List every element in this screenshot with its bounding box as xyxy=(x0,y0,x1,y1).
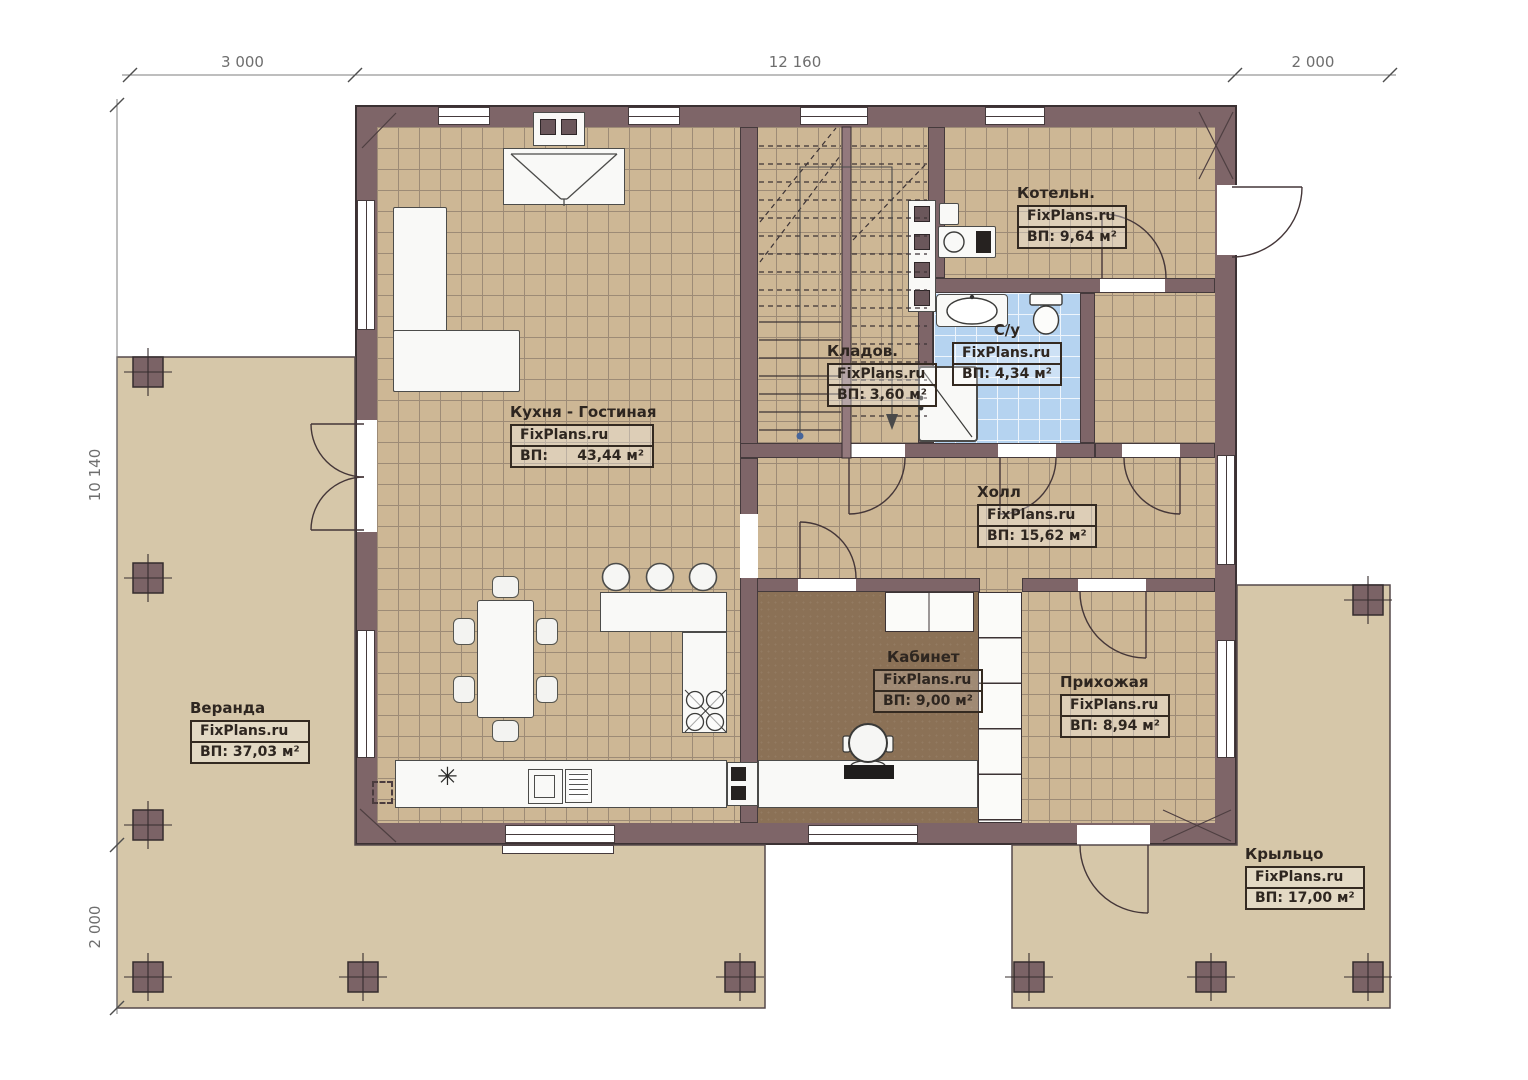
room-area: ВП: 9,00 м² xyxy=(875,692,981,711)
dining-chair-left-2 xyxy=(453,676,475,703)
dining-chair-right-2 xyxy=(536,676,558,703)
room-area: ВП: 15,62 м² xyxy=(979,527,1095,546)
room-info-box: FixPlans.ru ВП: 8,94 м² xyxy=(1060,694,1170,738)
watermark-text: FixPlans.ru xyxy=(875,671,981,692)
window-hall-right xyxy=(1217,455,1235,565)
dimension-top-right: 2 000 xyxy=(1235,53,1391,71)
watermark-text: FixPlans.ru xyxy=(192,722,308,743)
room-label-veranda: Веранда FixPlans.ru ВП: 37,03 м² xyxy=(190,699,310,764)
room-info-box: FixPlans.ru ВП: 4,34 м² xyxy=(952,342,1062,386)
interior-wall-bathroom-right xyxy=(1080,293,1095,443)
room-label-hall: Холл FixPlans.ru ВП: 15,62 м² xyxy=(977,483,1097,548)
room-label-entry: Прихожая FixPlans.ru ВП: 8,94 м² xyxy=(1060,673,1170,738)
bar-counter xyxy=(600,592,727,632)
vent-duct-3 xyxy=(914,262,930,278)
room-info-box: FixPlans.ru ВП: 3,60 м² xyxy=(827,363,937,407)
window-kitchen-left xyxy=(357,630,375,758)
window-sill-exterior xyxy=(502,845,614,854)
dish-drainer xyxy=(565,769,592,803)
office-cabinet xyxy=(885,592,974,632)
watermark-text: FixPlans.ru xyxy=(1247,868,1363,889)
room-area: ВП: 4,34 м² xyxy=(954,365,1060,384)
room-name: Крыльцо xyxy=(1245,845,1365,863)
wardrobe-column xyxy=(978,592,1022,823)
dimension-top-middle: 12 160 xyxy=(355,53,1235,71)
window-office-bottom xyxy=(808,825,918,843)
room-info-box: FixPlans.ru ВП: 15,62 м² xyxy=(977,504,1097,548)
room-label-porch: Крыльцо FixPlans.ru ВП: 17,00 м² xyxy=(1245,845,1365,910)
room-name: С/у xyxy=(952,321,1062,339)
room-area: ВП: 9,64 м² xyxy=(1019,228,1125,247)
room-info-box: FixPlans.ru ВП: 37,03 м² xyxy=(190,720,310,764)
boiler-exterior-door xyxy=(1232,187,1302,257)
room-area: ВП: 17,00 м² xyxy=(1247,889,1363,908)
dining-chair-left-1 xyxy=(453,618,475,645)
room-area: ВП: 8,94 м² xyxy=(1062,717,1168,736)
room-label-office: Кабинет FixPlans.ru ВП: 9,00 м² xyxy=(873,648,983,713)
room-name: Кладов. xyxy=(827,342,937,360)
room-info-box: FixPlans.ru ВП: 9,00 м² xyxy=(873,669,983,713)
room-name: Котельн. xyxy=(1017,184,1127,202)
chimney-flue-1 xyxy=(540,119,556,135)
room-area: ВП: 37,03 м² xyxy=(192,743,308,762)
door-opening-main-entrance xyxy=(1077,825,1150,845)
passage-kitchen-hall xyxy=(740,514,758,578)
dining-chair-bottom xyxy=(492,720,519,742)
room-info-box: FixPlans.ru ВП: 17,00 м² xyxy=(1245,866,1365,910)
door-opening-veranda xyxy=(357,420,377,532)
watermark-text: FixPlans.ru xyxy=(1062,696,1168,717)
window-living-top-2 xyxy=(628,107,680,125)
room-info-box: FixPlans.ru ВП: 9,64 м² xyxy=(1017,205,1127,249)
dimension-left-upper: 10 140 xyxy=(86,415,104,535)
watermark-text: FixPlans.ru xyxy=(512,426,652,447)
interior-wall-stairs-left xyxy=(740,127,758,444)
veranda-deck-south xyxy=(353,845,765,1008)
dining-table xyxy=(477,600,534,718)
window-entry-right xyxy=(1217,640,1235,758)
room-area: ВП: 43,44 м² xyxy=(512,447,652,466)
dimension-top-left: 3 000 xyxy=(130,53,355,71)
boiler-small-unit xyxy=(939,203,959,225)
room-label-boiler: Котельн. FixPlans.ru ВП: 9,64 м² xyxy=(1017,184,1127,249)
room-name: Веранда xyxy=(190,699,310,717)
door-opening-corridor xyxy=(1122,444,1180,457)
kitchen-flue-2 xyxy=(731,786,746,800)
room-name: Холл xyxy=(977,483,1097,501)
dimension-left-lower: 2 000 xyxy=(86,867,104,987)
kitchen-flue-1 xyxy=(731,767,746,781)
room-info-box: FixPlans.ru ВП: 43,44 м² xyxy=(510,424,654,468)
window-living-left-1 xyxy=(357,200,375,330)
door-opening-storage xyxy=(847,444,905,457)
room-name: Кухня - Гостиная xyxy=(510,403,656,421)
boiler-panel xyxy=(976,231,991,253)
veranda-deck xyxy=(117,357,355,1008)
room-label-bathroom: С/у FixPlans.ru ВП: 4,34 м² xyxy=(952,321,1062,386)
vent-duct-1 xyxy=(914,206,930,222)
watermark-text: FixPlans.ru xyxy=(954,344,1060,365)
freezer-symbol-icon: ✳ xyxy=(437,764,458,789)
window-boiler-top xyxy=(985,107,1045,125)
vent-duct-4 xyxy=(914,290,930,306)
room-label-kitchen-living: Кухня - Гостиная FixPlans.ru ВП: 43,44 м… xyxy=(510,403,656,468)
dining-chair-top xyxy=(492,576,519,598)
dining-chair-right-1 xyxy=(536,618,558,645)
sofa-chaise-section xyxy=(393,330,520,392)
watermark-text: FixPlans.ru xyxy=(829,365,935,386)
appliance-dashed-outline xyxy=(372,781,393,804)
fireplace xyxy=(503,148,625,205)
door-opening-boiler-exterior xyxy=(1217,185,1237,255)
floor-plan-page: { "watermark": "FixPlans.ru", "dims": { … xyxy=(0,0,1528,1080)
watermark-text: FixPlans.ru xyxy=(979,506,1095,527)
bar-counter-column xyxy=(682,632,727,733)
interior-wall-office-top xyxy=(740,578,980,592)
chimney-flue-2 xyxy=(561,119,577,135)
office-desk xyxy=(758,760,978,808)
kitchen-sink-basin xyxy=(534,775,555,798)
door-opening-entry-hall xyxy=(1078,579,1146,591)
room-area: ВП: 3,60 м² xyxy=(829,386,935,405)
interior-wall-boiler-bottom xyxy=(933,278,1215,293)
room-name: Кабинет xyxy=(887,648,983,666)
room-label-storage: Кладов. FixPlans.ru ВП: 3,60 м² xyxy=(827,342,937,407)
door-opening-bathroom xyxy=(998,444,1056,457)
window-stairs-top xyxy=(800,107,868,125)
room-name: Прихожая xyxy=(1060,673,1170,691)
door-opening-boiler xyxy=(1100,279,1165,292)
watermark-text: FixPlans.ru xyxy=(1019,207,1125,228)
door-opening-office xyxy=(798,579,856,591)
vent-duct-2 xyxy=(914,234,930,250)
window-living-top-1 xyxy=(438,107,490,125)
window-kitchen-bottom xyxy=(505,825,615,843)
